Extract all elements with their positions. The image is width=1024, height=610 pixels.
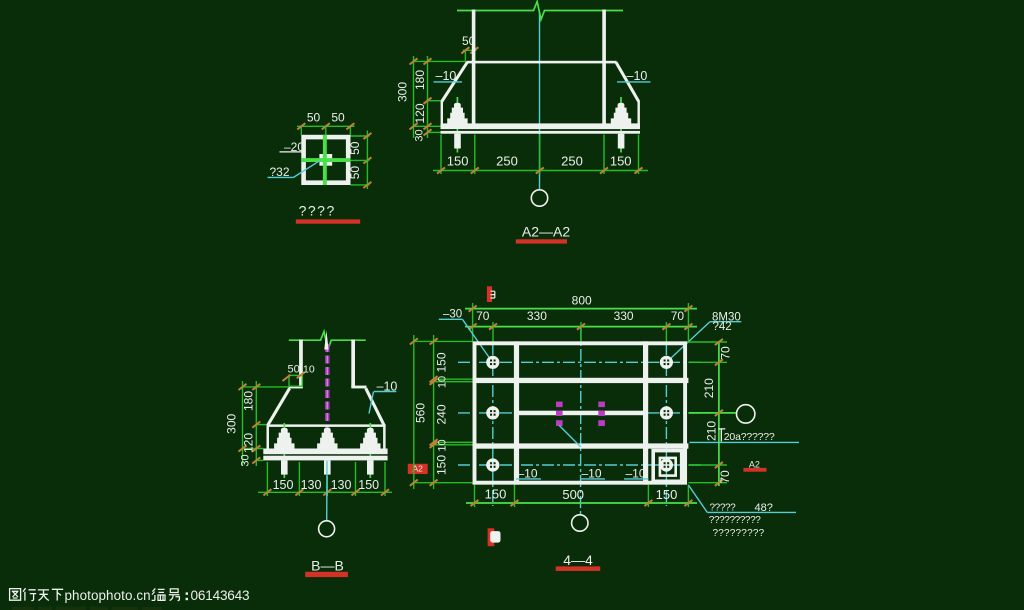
svg-text:?42: ?42 [713,321,732,333]
svg-text:300: 300 [225,413,239,433]
svg-text:150: 150 [435,352,449,372]
svg-text:??????????: ?????????? [709,515,761,526]
svg-text:150: 150 [273,478,294,492]
svg-text:????: ???? [299,203,336,219]
svg-text:photophoto.cn: photophoto.cn [65,588,151,603]
svg-text:120: 120 [242,433,256,453]
svg-text:210: 210 [705,421,719,441]
svg-text:180: 180 [242,391,256,411]
svg-text:150: 150 [435,455,449,475]
svg-text:150: 150 [485,486,507,501]
svg-text:150: 150 [358,478,379,492]
svg-text:10: 10 [437,439,449,451]
svg-text:70: 70 [476,309,490,323]
svg-text:4—4: 4—4 [563,552,593,568]
svg-text:500: 500 [562,487,584,502]
svg-text:B—B: B—B [311,558,344,574]
svg-text:330: 330 [614,309,634,323]
svg-text:10: 10 [303,363,315,375]
svg-text:130: 130 [331,478,352,492]
svg-text:300: 300 [396,82,410,102]
svg-text:330: 330 [527,309,547,323]
svg-text:250: 250 [561,154,583,169]
svg-text:30: 30 [240,454,252,466]
svg-text:560: 560 [414,403,428,423]
svg-text:800: 800 [572,294,592,308]
svg-text:70: 70 [671,309,685,323]
svg-text:210: 210 [702,378,716,398]
svg-text:30: 30 [414,129,426,141]
svg-text:180: 180 [413,70,427,90]
svg-text:–10: –10 [436,69,457,83]
svg-text:50: 50 [331,111,345,125]
svg-text:150: 150 [447,154,469,169]
svg-text:240: 240 [435,404,449,424]
svg-text:A2: A2 [749,459,760,469]
svg-text:A2—A2: A2—A2 [522,224,570,240]
svg-text:?????????: ????????? [713,528,765,539]
svg-text:130: 130 [301,478,322,492]
svg-text:06143643: 06143643 [191,588,250,603]
svg-text:150: 150 [610,154,632,169]
svg-text:120: 120 [413,103,427,123]
svg-text:70: 70 [718,470,732,484]
svg-text:150: 150 [656,487,678,502]
svg-text:20a??????: 20a?????? [724,431,775,443]
svg-text:?????: ????? [710,503,737,514]
svg-text:–10: –10 [627,69,648,83]
svg-text:70: 70 [719,346,733,360]
svg-text:48?: 48? [755,502,773,514]
svg-text:50: 50 [307,111,321,125]
svg-text:10: 10 [437,376,449,388]
svg-text:250: 250 [496,154,518,169]
svg-text:50: 50 [288,363,300,375]
